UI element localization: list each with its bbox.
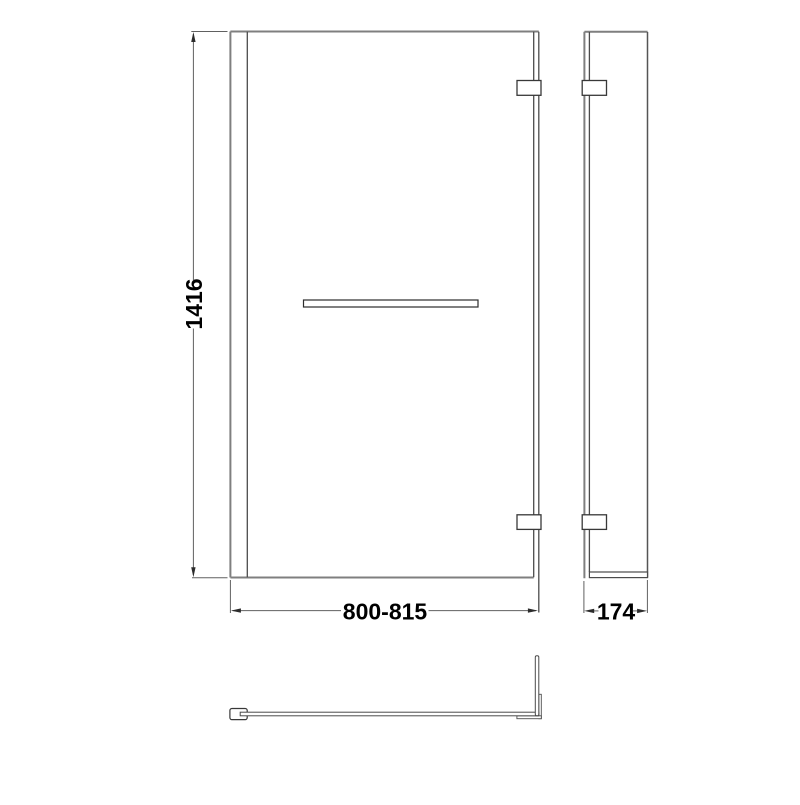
svg-text:174: 174 [597,599,636,625]
svg-text:1416: 1416 [181,278,207,329]
svg-text:800-815: 800-815 [343,599,428,625]
